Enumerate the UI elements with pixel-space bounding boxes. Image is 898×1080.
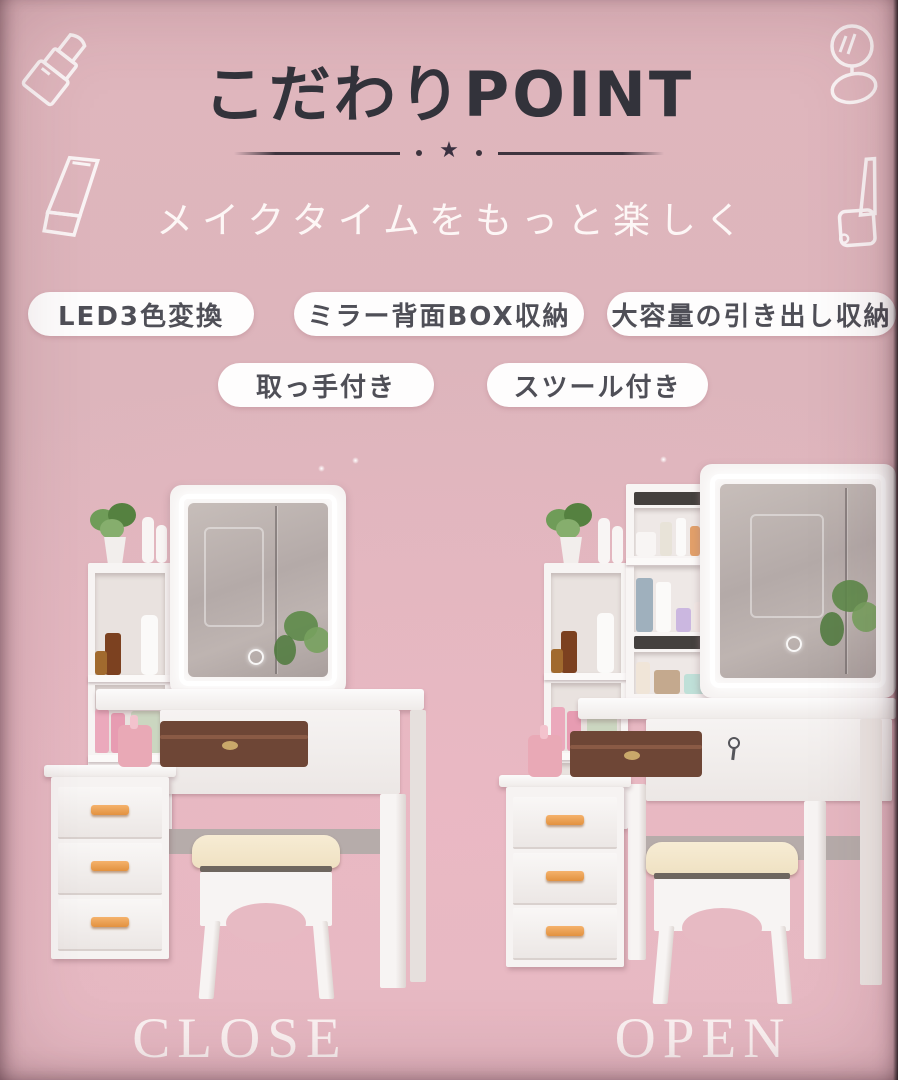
amber-jar (95, 651, 107, 675)
divider-line-right (498, 152, 664, 155)
feature-badge-label: スツール付き (513, 367, 681, 404)
case-lid-line (570, 745, 702, 749)
feature-badge-mirror-box: ミラー背面BOX収納 (294, 292, 584, 336)
caption-close: CLOSE (105, 1006, 375, 1071)
white-bottle (612, 526, 623, 564)
white-pump-bottle (597, 613, 614, 673)
desk-side-panel (860, 719, 882, 985)
divider-dot (416, 150, 422, 156)
desk-top (96, 689, 424, 710)
drawer-handle (91, 861, 129, 871)
white-bottle (598, 518, 610, 564)
feature-badge-led: LED3色変換 (28, 292, 254, 336)
drawer-cabinet (51, 777, 169, 959)
mirror-glass (188, 503, 328, 677)
page-subtitle: メイクタイムをもっと楽しく (0, 190, 898, 244)
stool-cushion (192, 835, 340, 868)
plant-leaves (100, 519, 124, 539)
page-title: こだわりPOINT (0, 44, 898, 134)
reflected-plant (274, 635, 296, 665)
stool-leg (771, 926, 793, 1004)
amber-bottle (105, 633, 121, 675)
led-mirror-open (700, 464, 896, 698)
feature-badge-label: ミラー背面BOX収納 (307, 296, 570, 333)
reflected-plant (304, 627, 328, 653)
cream-bottle (660, 522, 672, 556)
plant-pot (102, 537, 128, 563)
spray-can (636, 578, 653, 632)
cosmetic-box (636, 532, 656, 556)
amber-bottle (561, 631, 577, 673)
drawer-cabinet (506, 787, 624, 967)
stool-cushion (646, 842, 798, 875)
potted-plant (88, 503, 148, 565)
feature-badge-label: LED3色変換 (58, 296, 224, 333)
white-bottle (142, 517, 154, 563)
stool-arch-cutout (226, 903, 306, 943)
drawer-key (728, 737, 740, 749)
star-divider: ★ (234, 142, 664, 164)
shelf-opening (95, 573, 165, 675)
amber-jar (551, 649, 563, 673)
mirror-reflection (750, 514, 824, 618)
feature-badge-handle: 取っ手付き (218, 363, 434, 407)
star-icon: ★ (439, 140, 459, 162)
tumbler-straw (130, 715, 138, 729)
desk-side-panel (410, 710, 426, 982)
stool-leg (653, 926, 675, 1004)
case-emblem (624, 751, 640, 760)
drawer-handle (91, 917, 129, 927)
shelf-opening (551, 573, 621, 673)
candle-jar (654, 670, 680, 694)
case-lid-line (160, 735, 308, 739)
product-photo-close (30, 455, 450, 1007)
drawer-handle (546, 926, 584, 936)
photo-edge (893, 0, 898, 1080)
reflected-plant (820, 612, 844, 646)
spray-can (656, 582, 671, 632)
desk-leg (628, 784, 646, 960)
desk-top (578, 698, 896, 719)
led-mirror-closed (170, 485, 346, 695)
drawer-handle (546, 815, 584, 825)
plant-leaves (556, 519, 580, 539)
stool-leg (313, 921, 335, 999)
touch-sensor (786, 636, 802, 652)
cabinet-drawer (513, 797, 617, 849)
shelf-board (88, 675, 172, 682)
plant-pot (558, 537, 584, 563)
white-pump-bottle (141, 615, 158, 675)
cabinet-drawer (58, 787, 162, 839)
sparkle (318, 465, 325, 472)
touch-sensor (248, 649, 264, 665)
drawer-handle (91, 805, 129, 815)
mirror-reflection (204, 527, 264, 627)
feature-badge-label: 大容量の引き出し収納 (611, 296, 891, 333)
white-bottle (676, 518, 686, 556)
cream-pump (636, 662, 650, 694)
divider-line-left (234, 152, 400, 155)
purple-jar (676, 608, 691, 632)
feature-badge-stool: スツール付き (487, 363, 708, 407)
sparkle (660, 456, 667, 463)
feature-badge-label: 取っ手付き (256, 367, 396, 404)
product-photo-open (488, 448, 898, 1007)
cabinet-drawer (513, 853, 617, 905)
tumbler-straw (540, 725, 548, 739)
mirror-glass (720, 484, 876, 678)
pink-tumbler (118, 725, 152, 767)
white-bottle (156, 525, 167, 563)
caption-open: OPEN (568, 1006, 838, 1071)
reflected-plant (852, 602, 876, 632)
stool-arch-cutout (682, 908, 762, 948)
desk-leg (380, 794, 406, 988)
cabinet-counter (44, 765, 176, 777)
sparkle (352, 457, 359, 464)
case-emblem (222, 741, 238, 750)
feature-badge-drawer-storage: 大容量の引き出し収納 (607, 292, 896, 336)
orange-bottle (690, 526, 700, 556)
stool-leg (199, 921, 221, 999)
desk-leg (804, 801, 826, 959)
shelf-board (544, 673, 628, 680)
cabinet-drawer (58, 899, 162, 951)
cabinet-drawer (513, 908, 617, 960)
drawer-handle (546, 871, 584, 881)
promo-banner: こだわりPOINT ★ メイクタイムをもっと楽しく LED3色変換 ミラー背面B… (0, 0, 898, 1080)
pink-bottle (95, 709, 109, 753)
potted-plant (544, 503, 604, 565)
cabinet-drawer (58, 843, 162, 895)
pink-tumbler (528, 735, 562, 777)
divider-dot (476, 150, 482, 156)
